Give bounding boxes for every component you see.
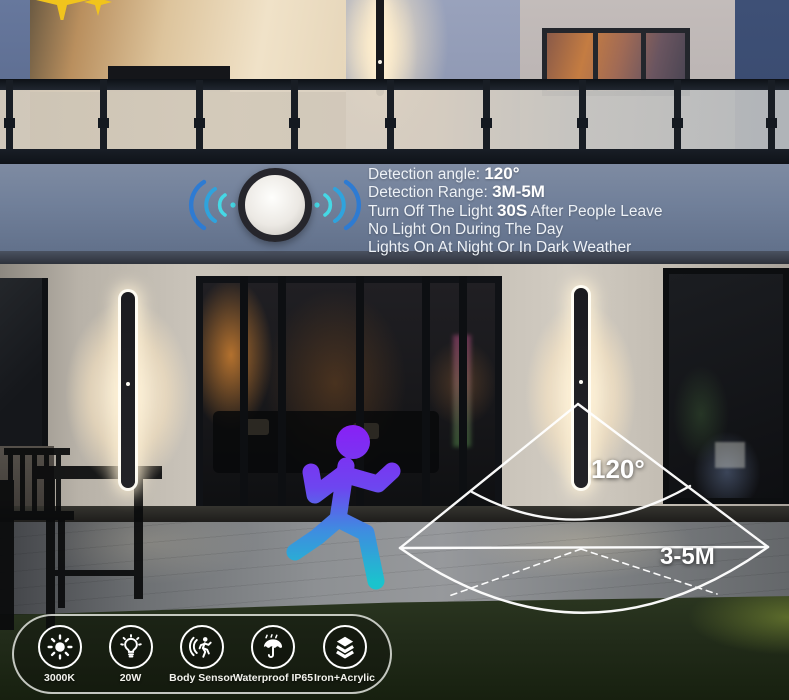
spec-line-turn-off: Turn Off The Light 30S After People Leav… — [368, 202, 698, 220]
detection-range-label: 3-5M — [660, 543, 715, 571]
pir-sensor-dome — [238, 168, 312, 242]
left-wall-lamp — [121, 292, 135, 488]
right-dark-window — [663, 268, 789, 504]
body-sensor-icon — [180, 625, 224, 669]
feature-waterproof: Waterproof IP65 — [237, 625, 309, 684]
wattage-bulb-icon — [109, 625, 153, 669]
feature-label: Waterproof IP65 — [233, 672, 313, 684]
feature-wattage: 20W — [95, 625, 166, 684]
feature-label: Iron+Acrylic — [314, 672, 375, 684]
feature-label: 3000K — [44, 672, 75, 684]
railing-bottom-fascia — [0, 149, 789, 164]
spec-line-night-on: Lights On At Night Or In Dark Weather — [368, 238, 698, 256]
outdoor-wall-lamp-product-scene: Detection angle: 120° Detection Range: 3… — [0, 0, 789, 700]
material-layers-icon — [323, 625, 367, 669]
feature-color-temperature: 3000K — [24, 625, 95, 684]
window-reflection — [715, 442, 745, 468]
spec-line-detection-angle: Detection angle: 120° — [368, 165, 698, 183]
right-wall-lamp — [574, 288, 588, 488]
feature-label: 20W — [120, 672, 142, 684]
spec-line-detection-range: Detection Range: 3M-5M — [368, 183, 698, 201]
waterproof-umbrella-icon — [251, 625, 295, 669]
detection-angle-label: 120° — [591, 454, 645, 485]
feature-body-sensor: Body Sensor — [166, 625, 237, 684]
feature-label: Body Sensor — [169, 672, 234, 684]
spec-text-block: Detection angle: 120° Detection Range: 3… — [368, 165, 698, 256]
features-bar: 3000K 20W — [12, 614, 392, 694]
railing-top-rail — [0, 79, 789, 90]
color-temperature-sun-icon — [38, 625, 82, 669]
running-person-icon — [283, 421, 401, 597]
spec-line-no-light-day: No Light On During The Day — [368, 220, 698, 238]
feature-material: Iron+Acrylic — [309, 625, 380, 684]
